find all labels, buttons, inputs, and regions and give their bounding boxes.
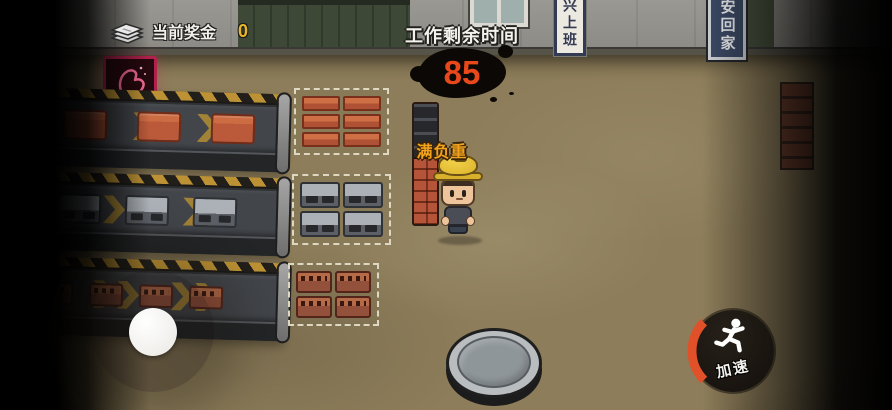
timer-label: 工作剩余时间: [372, 22, 552, 48]
joystick-knob[interactable]: [129, 308, 177, 356]
drop-zone-gray-blocks: [292, 174, 391, 245]
red-brick-slab-item: [343, 114, 381, 129]
speed-up-button[interactable]: 加速: [688, 306, 778, 396]
worker-legs: [448, 225, 468, 234]
small-brick-item: [335, 296, 371, 318]
red-brick-slab-item: [302, 114, 340, 129]
gray-block-item: [57, 193, 102, 224]
timer-value: 85: [444, 54, 481, 92]
window-mullion: [497, 0, 501, 23]
worker-eye: [462, 190, 466, 197]
bonus-counter: 当前奖金 0: [110, 18, 248, 44]
full-load-badge: 满负重: [404, 138, 480, 162]
belt-endcap: [275, 176, 292, 258]
belt-surface: [0, 183, 286, 237]
red-brick-slab-item: [302, 132, 340, 147]
red-brick-item: [211, 113, 256, 144]
red-brick-slab-item: [302, 96, 340, 111]
brick-pallet: [780, 82, 814, 170]
sign-happy-work-text: 兴上班: [563, 0, 577, 49]
gray-block-item: [193, 197, 238, 228]
sign-safe-home-text: 安回家: [720, 0, 735, 53]
gray-block-item: [300, 182, 340, 208]
red-brick-item: [0, 107, 33, 138]
manhole-inner: [457, 336, 531, 388]
work-timer: 工作剩余时间 85: [372, 22, 552, 98]
belt-surface: [0, 99, 286, 153]
bonus-value: 0: [238, 21, 248, 42]
red-brick-slab-item: [343, 96, 381, 111]
gray-block-item: [343, 182, 383, 208]
drop-zone-small-bricks: [288, 263, 379, 326]
game-screen: 兴上班 安回家: [0, 0, 892, 410]
worker-body: [444, 206, 472, 226]
character-shadow: [438, 236, 482, 245]
banknote-stack-icon: [110, 18, 144, 44]
sign-happy-work: 兴上班: [554, 0, 586, 56]
belt-endcap: [275, 92, 292, 174]
drop-zone-red-bricks: [294, 88, 389, 155]
zone-stack: [296, 271, 371, 318]
small-brick-item: [39, 281, 74, 305]
belt-items: [0, 99, 286, 153]
gray-block-item: [125, 195, 170, 226]
virtual-joystick[interactable]: [92, 270, 214, 392]
worker: [432, 152, 496, 244]
red-brick-slab-item: [343, 132, 381, 147]
conveyor-gray-blocks: [0, 170, 286, 256]
gray-block-item: [343, 211, 383, 237]
red-brick-item: [63, 109, 108, 140]
conveyor-red-bricks: [0, 86, 286, 172]
worker-eye: [450, 190, 454, 197]
red-brick-item: [137, 111, 182, 142]
worker-face: [441, 178, 475, 206]
worker-mouth: [456, 198, 463, 200]
gray-block-item: [300, 211, 340, 237]
sign-safe-home: 安回家: [708, 0, 746, 60]
small-brick-item: [296, 296, 332, 318]
small-brick-item: [0, 280, 23, 304]
bonus-label: 当前奖金: [152, 19, 216, 43]
belt-items: [0, 183, 286, 237]
small-brick-item: [296, 271, 332, 293]
manhole-cover: [446, 328, 542, 406]
zone-stack: [302, 96, 381, 147]
small-brick-item: [335, 271, 371, 293]
ink-blob: 85: [418, 48, 506, 98]
zone-stack: [300, 182, 383, 237]
gray-block-item: [0, 191, 33, 222]
running-man-icon: [714, 317, 752, 355]
player-character: 满负重: [408, 96, 500, 248]
